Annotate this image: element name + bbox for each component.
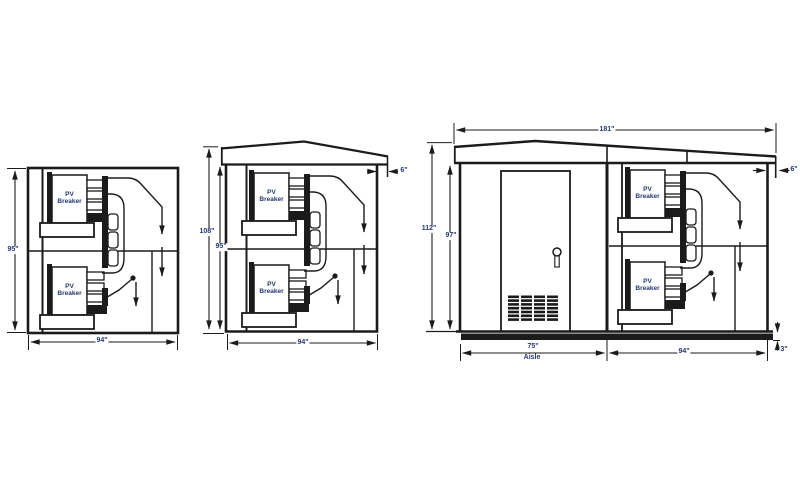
roof-line [221,142,388,157]
dim-side-overall-height: 108" [199,228,216,236]
dim-front-skid-height: 3" [779,346,788,354]
dim-side-interior-height: 95" [214,243,227,251]
pv-breaker-label: PV Breaker [258,189,284,203]
dim-front-aisle-text: Aisle [523,354,542,362]
dim-section-height: 95" [6,246,19,254]
front-elevation [426,123,791,361]
dim-front-overall-height: 112" [421,225,438,233]
dim-front-roof-overhang: 6" [789,166,798,174]
dim-side-width: 94" [296,339,309,347]
pv-breaker-label: PV Breaker [634,186,660,200]
dim-front-interior-height: 97" [444,232,457,240]
roof-line [454,141,776,157]
pv-breaker-label: PV Breaker [634,278,660,292]
dim-front-overall-width: 181" [599,126,616,134]
pv-breaker-label: PV Breaker [258,281,284,295]
pv-breaker-label: PV Breaker [56,191,82,205]
base-skid [461,334,773,341]
drawing-linework [0,0,800,500]
louver-vent [508,296,558,321]
dim-side-roof-overhang: 6" [399,167,408,175]
dim-section-width: 94" [95,337,108,345]
pv-breaker-label: PV Breaker [56,283,82,297]
door-handle [553,248,561,256]
section-view [7,168,178,350]
dim-front-aisle-width: 75" [526,343,539,351]
technical-drawing-page: 95" 94" 108" 95" 94" 6" 181" 112" 97" 75… [0,0,800,500]
dim-front-bay-width: 94" [677,348,690,356]
side-view [203,142,398,351]
